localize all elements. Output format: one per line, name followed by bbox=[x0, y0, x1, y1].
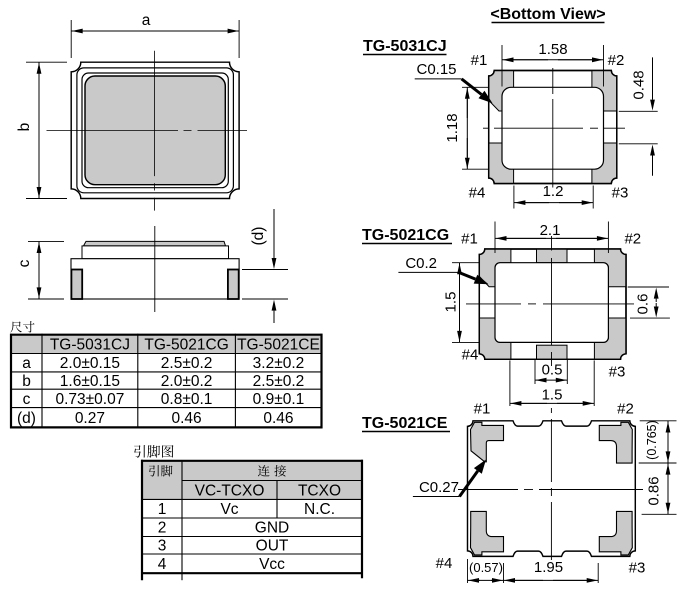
svg-text:GND: GND bbox=[255, 520, 289, 537]
svg-text:c: c bbox=[23, 391, 31, 408]
svg-text:OUT: OUT bbox=[256, 538, 289, 555]
svg-text:N.C.: N.C. bbox=[304, 501, 335, 518]
svg-text:0.8±0.1: 0.8±0.1 bbox=[161, 391, 213, 408]
svg-text:2: 2 bbox=[158, 520, 167, 537]
svg-text:TG-5031CJ: TG-5031CJ bbox=[363, 38, 447, 55]
svg-text:b: b bbox=[16, 123, 33, 132]
svg-text:c: c bbox=[16, 259, 33, 267]
svg-text:2.5±0.2: 2.5±0.2 bbox=[161, 355, 213, 372]
svg-text:2.1: 2.1 bbox=[540, 222, 561, 239]
svg-text:0.27: 0.27 bbox=[75, 410, 105, 427]
svg-text:3: 3 bbox=[158, 538, 167, 555]
svg-text:a: a bbox=[22, 355, 31, 372]
svg-text:#4: #4 bbox=[469, 185, 486, 202]
svg-text:TG-5021CE: TG-5021CE bbox=[362, 415, 448, 432]
svg-text:0.9±0.1: 0.9±0.1 bbox=[253, 391, 305, 408]
svg-text:TG-5031CJ: TG-5031CJ bbox=[50, 337, 130, 354]
svg-text:1.58: 1.58 bbox=[538, 41, 567, 58]
svg-text:Vcc: Vcc bbox=[259, 556, 285, 573]
svg-text:#1: #1 bbox=[474, 401, 491, 418]
svg-text:2.0±0.2: 2.0±0.2 bbox=[161, 373, 213, 390]
svg-text:#2: #2 bbox=[608, 52, 625, 69]
svg-text:(0.765): (0.765) bbox=[645, 420, 659, 460]
svg-text:1: 1 bbox=[158, 501, 167, 518]
svg-text:0.86: 0.86 bbox=[646, 476, 663, 505]
svg-text:a: a bbox=[142, 12, 151, 29]
svg-text:0.6: 0.6 bbox=[635, 294, 652, 315]
svg-text:C0.15: C0.15 bbox=[416, 61, 456, 78]
svg-text:1.2: 1.2 bbox=[543, 183, 564, 200]
svg-text:TCXO: TCXO bbox=[298, 482, 341, 499]
svg-text:b: b bbox=[22, 373, 31, 390]
svg-text:C0.2: C0.2 bbox=[405, 255, 437, 272]
svg-text:0.73±0.07: 0.73±0.07 bbox=[55, 391, 124, 408]
svg-text:TG-5021CG: TG-5021CG bbox=[362, 227, 449, 244]
svg-text:0.48: 0.48 bbox=[631, 70, 648, 99]
svg-text:#2: #2 bbox=[624, 231, 641, 248]
svg-text:#4: #4 bbox=[436, 555, 453, 572]
svg-text:(d): (d) bbox=[250, 227, 267, 246]
svg-text:2.0±0.15: 2.0±0.15 bbox=[60, 355, 120, 372]
svg-text:(d): (d) bbox=[17, 410, 36, 427]
svg-text:TG-5021CG: TG-5021CG bbox=[144, 337, 228, 354]
svg-text:1.5: 1.5 bbox=[542, 387, 563, 404]
svg-text:1.6±0.15: 1.6±0.15 bbox=[60, 373, 120, 390]
svg-text:1.95: 1.95 bbox=[534, 559, 563, 576]
svg-text:0.46: 0.46 bbox=[263, 410, 293, 427]
svg-text:4: 4 bbox=[158, 556, 167, 573]
svg-text:#4: #4 bbox=[462, 347, 479, 364]
svg-text:#3: #3 bbox=[612, 185, 629, 202]
svg-text:(0.57): (0.57) bbox=[469, 560, 503, 575]
svg-text:VC-TCXO: VC-TCXO bbox=[195, 482, 265, 499]
svg-text:#2: #2 bbox=[617, 401, 634, 418]
svg-text:C0.27: C0.27 bbox=[419, 479, 459, 496]
svg-text:<Bottom View>: <Bottom View> bbox=[490, 6, 605, 23]
svg-text:TG-5021CE: TG-5021CE bbox=[237, 337, 320, 354]
svg-text:#1: #1 bbox=[471, 52, 488, 69]
svg-text:#3: #3 bbox=[609, 364, 626, 381]
svg-text:3.2±0.2: 3.2±0.2 bbox=[253, 355, 305, 372]
svg-text:2.5±0.2: 2.5±0.2 bbox=[253, 373, 305, 390]
svg-text:1.5: 1.5 bbox=[443, 292, 460, 313]
svg-text:Vc: Vc bbox=[220, 501, 238, 518]
svg-text:1.18: 1.18 bbox=[444, 113, 461, 142]
svg-text:#3: #3 bbox=[629, 560, 646, 577]
svg-text:#1: #1 bbox=[461, 231, 478, 248]
svg-text:0.5: 0.5 bbox=[542, 362, 563, 379]
svg-text:0.46: 0.46 bbox=[172, 410, 202, 427]
